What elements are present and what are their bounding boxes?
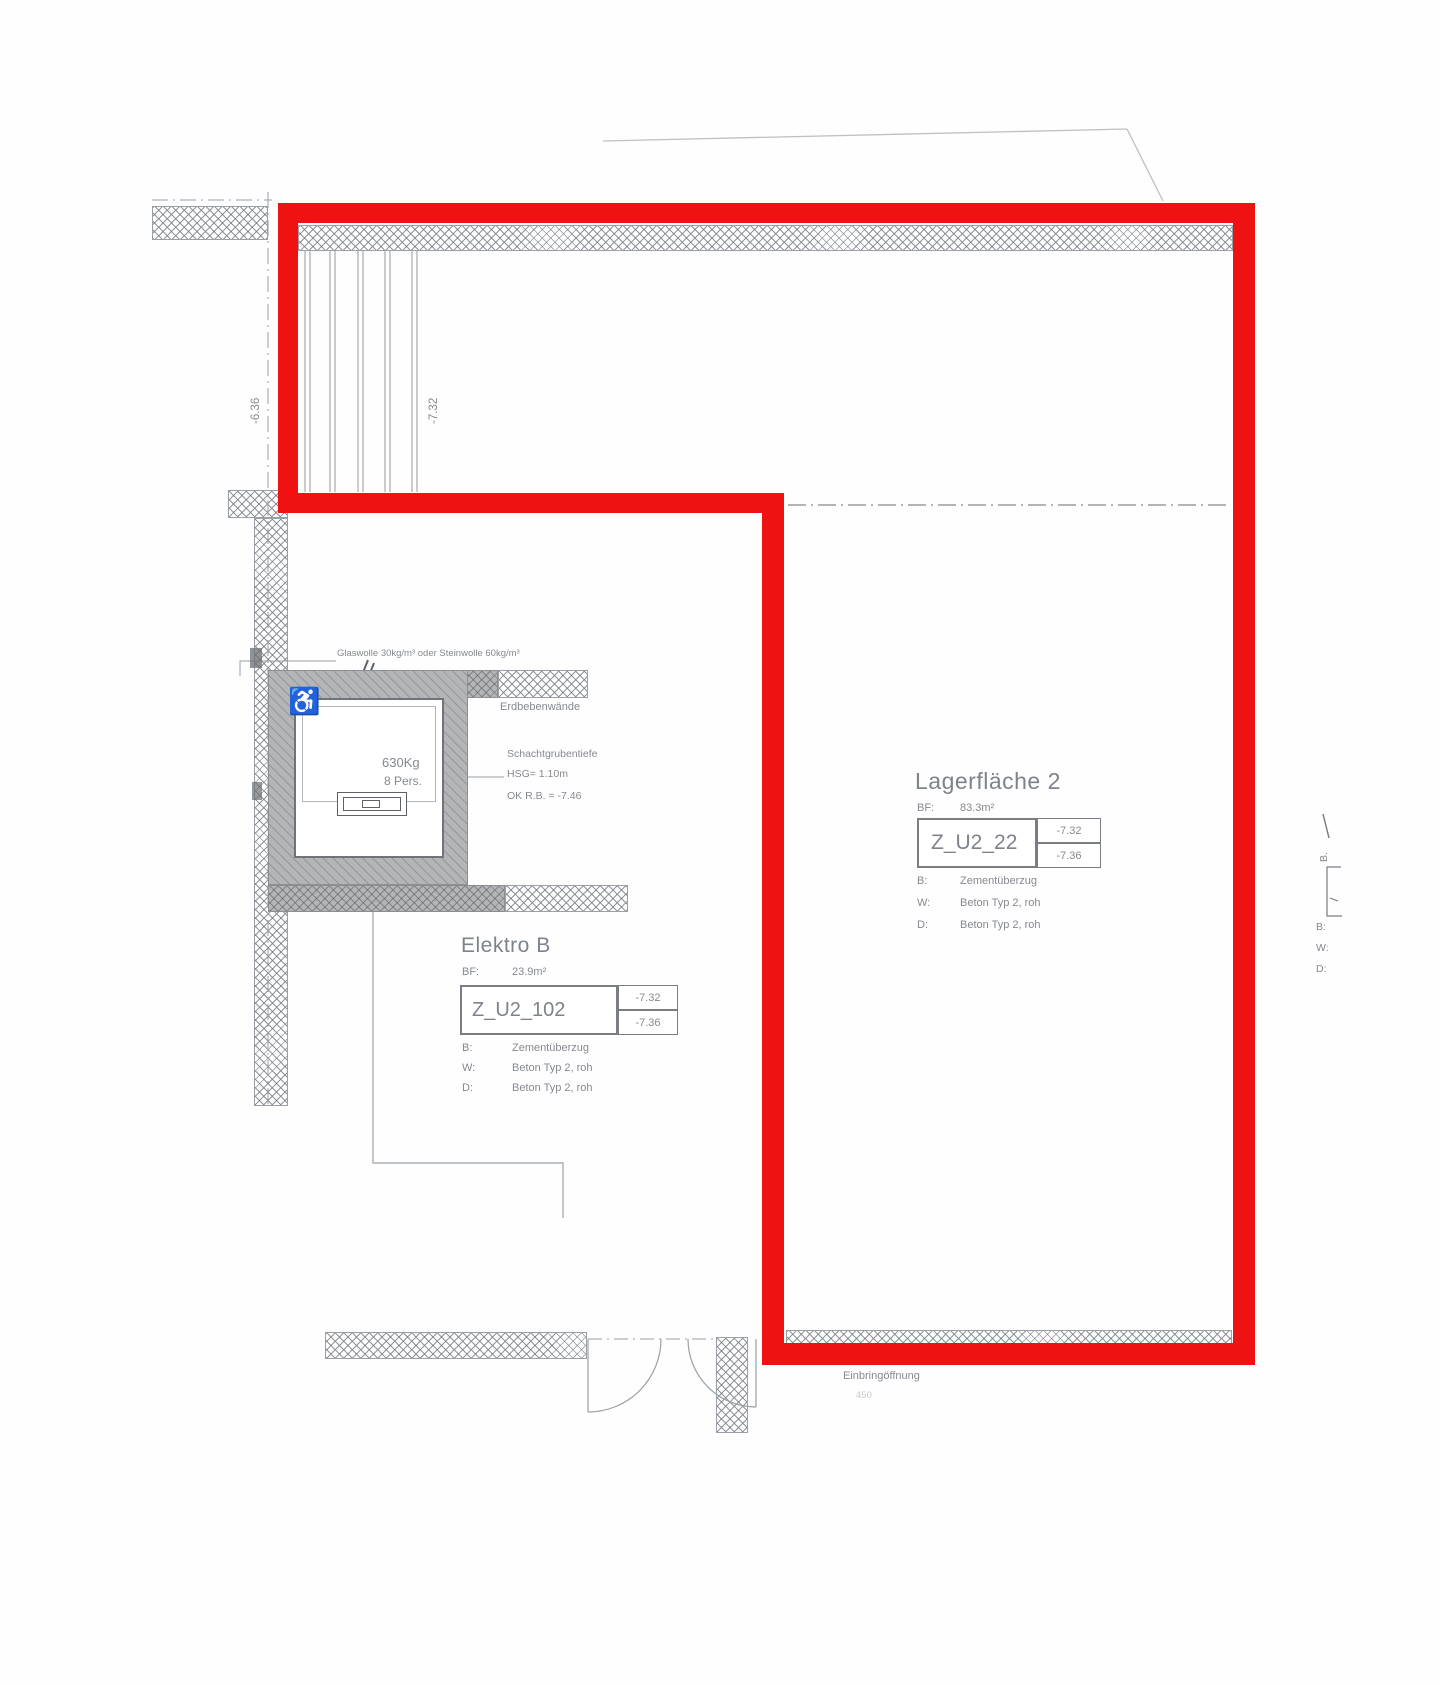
wall-hatch-top: [298, 225, 1233, 251]
finish-row-w: W:Beton Typ 2, roh: [917, 897, 1041, 909]
level-value: -7.36: [635, 1017, 660, 1029]
finish-value: Beton Typ 2, roh: [960, 897, 1041, 909]
highlight-outline-right: [1233, 203, 1255, 1365]
finish-value: Zementüberzug: [512, 1042, 589, 1054]
wheelchair-icon: ♿: [288, 686, 320, 717]
highlight-outline-top: [278, 203, 1255, 223]
room-code-box-elektro: Z_U2_102: [460, 985, 618, 1035]
site-boundary-line: [603, 129, 1127, 141]
level-value: -7.36: [1056, 850, 1081, 862]
room-code-elektro: Z_U2_102: [472, 999, 565, 1022]
finish-value: Beton Typ 2, roh: [512, 1062, 593, 1074]
level-box-lager-top: -7.32: [1037, 818, 1101, 843]
highlight-outline-middle: [278, 493, 784, 513]
door-swing-arc: [588, 1339, 661, 1412]
edge-fragment-rotated-label: B.: [1318, 852, 1330, 862]
pit-depth-line1: Schachtgrubentiefe: [507, 748, 597, 760]
finish-label: B:: [917, 875, 960, 887]
finish-label: B:: [462, 1042, 512, 1054]
edge-fragment-b: B:: [1316, 921, 1326, 933]
wall-hatch-door-pier: [716, 1337, 748, 1433]
einbringoeffnung-label: Einbringöffnung: [843, 1370, 920, 1382]
wall-fixture-marker: [252, 782, 262, 800]
level-dimension-mid: -7.32: [428, 398, 440, 424]
wall-fixture-marker: [250, 648, 262, 668]
insulation-note: Glaswolle 30kg/m³ oder Steinwolle 60kg/m…: [337, 648, 520, 659]
finish-row-b: B:Zementüberzug: [917, 875, 1037, 887]
level-box-elektro-bottom: -7.36: [618, 1010, 678, 1035]
room-code-box-lager: Z_U2_22: [917, 818, 1037, 868]
shaft-insulation-band-bottom-gray: [268, 885, 505, 912]
room-elektro-bf-row: BF:23.9m²: [462, 966, 546, 978]
elevator-machine-detail: [362, 800, 380, 808]
level-value: -7.32: [1056, 825, 1081, 837]
site-boundary-line: [1127, 129, 1163, 201]
floorplan-sheet: ♿ 630Kg 8 Pers. Glaswolle 30kg/m³ oder S…: [0, 0, 1440, 1685]
level-dimension-left: -6.36: [250, 398, 262, 424]
einbringoeffnung-dimension: 450: [856, 1390, 872, 1401]
edge-fragment-d: D:: [1316, 963, 1327, 975]
finish-label: W:: [462, 1062, 512, 1074]
level-value: -7.32: [635, 992, 660, 1004]
pit-depth-line3: OK R.B. = -7.46: [507, 790, 581, 802]
wall-hatch-top-left: [152, 206, 268, 240]
edge-fragment-w: W:: [1316, 942, 1329, 954]
bf-value: 23.9m²: [512, 966, 546, 978]
room-title-elektro: Elektro B: [461, 934, 551, 958]
highlight-outline-lower-left: [762, 493, 784, 1365]
bf-value: 83.3m²: [960, 802, 994, 814]
wall-hatch-bottom-left: [325, 1332, 587, 1359]
finish-row-w: W:Beton Typ 2, roh: [462, 1062, 593, 1074]
finish-value: Zementüberzug: [960, 875, 1037, 887]
finish-value: Beton Typ 2, roh: [960, 919, 1041, 931]
edge-fragment-bracket: [1327, 867, 1342, 916]
finish-row-d: D:Beton Typ 2, roh: [462, 1082, 593, 1094]
room-lager-bf-row: BF:83.3m²: [917, 802, 994, 814]
finish-row-d: D:Beton Typ 2, roh: [917, 919, 1041, 931]
level-box-lager-bottom: -7.36: [1037, 843, 1101, 868]
pit-depth-line2: HSG= 1.10m: [507, 768, 568, 780]
highlight-outline-bottom: [762, 1343, 1255, 1365]
shaft-insulation-band-bottom-light: [505, 885, 628, 912]
shaft-insulation-band-top-light: [498, 670, 588, 698]
erdbebenwaende-label: Erdbebenwände: [500, 701, 580, 713]
edge-fragment-tick: [1323, 814, 1329, 838]
finish-row-b: B:Zementüberzug: [462, 1042, 589, 1054]
room-code-lager: Z_U2_22: [931, 831, 1017, 855]
level-box-elektro-top: -7.32: [618, 985, 678, 1010]
finish-label: D:: [462, 1082, 512, 1094]
bf-label: BF:: [462, 966, 512, 978]
finish-label: D:: [917, 919, 960, 931]
lift-capacity-label: 630Kg: [382, 755, 420, 770]
room-title-lager: Lagerfläche 2: [915, 768, 1061, 795]
finish-value: Beton Typ 2, roh: [512, 1082, 593, 1094]
bf-label: BF:: [917, 802, 960, 814]
highlight-outline-upper-left: [278, 203, 298, 513]
pile-wall-lines: [305, 251, 417, 492]
lift-persons-label: 8 Pers.: [384, 774, 422, 788]
finish-label: W:: [917, 897, 960, 909]
